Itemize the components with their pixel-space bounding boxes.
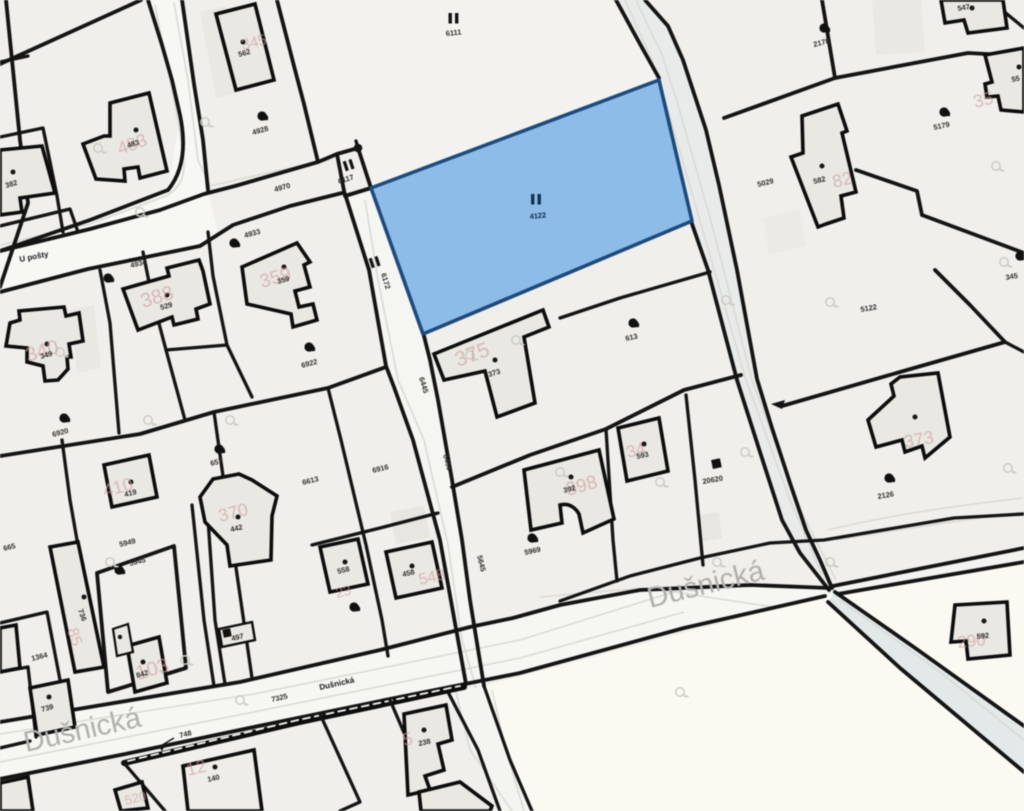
svg-text:592: 592 [976,631,989,641]
svg-text:4122: 4122 [529,210,546,221]
svg-text:55: 55 [1011,74,1021,84]
svg-text:6111: 6111 [445,27,461,38]
